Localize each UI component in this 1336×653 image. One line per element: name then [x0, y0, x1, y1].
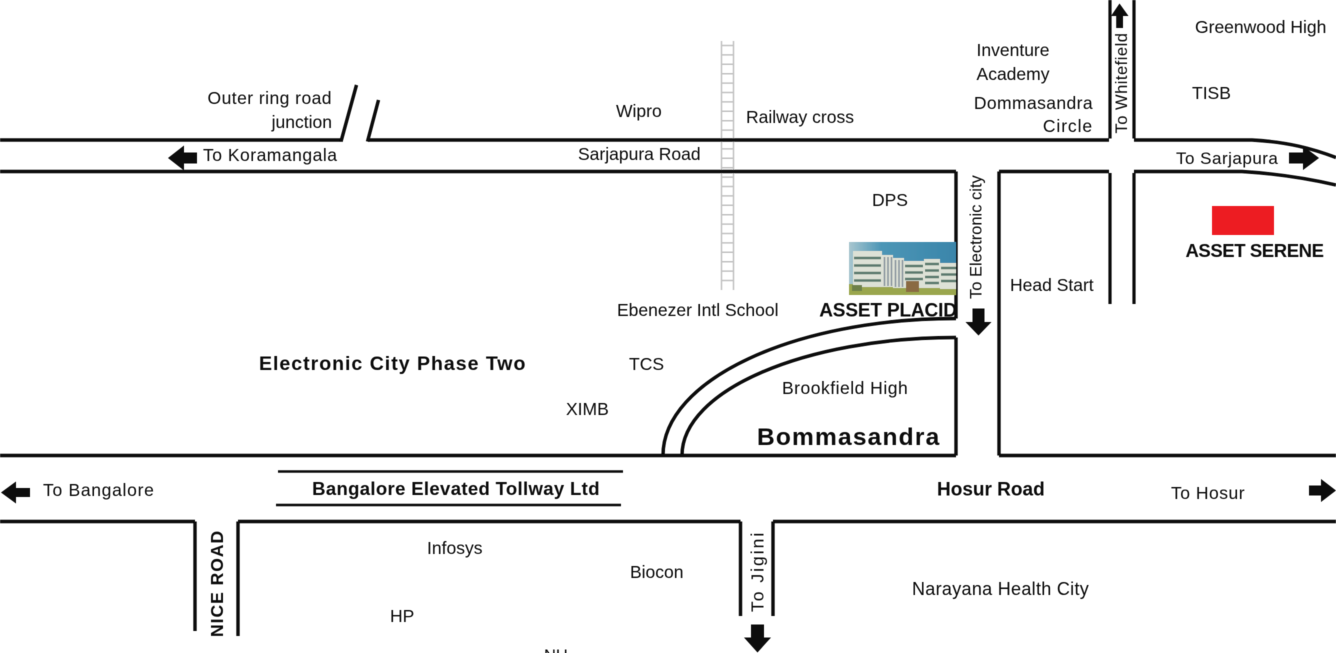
svg-text:Biocon: Biocon	[630, 562, 684, 582]
svg-text:To Hosur: To Hosur	[1171, 483, 1245, 503]
svg-text:DPS: DPS	[872, 190, 908, 210]
svg-text:Inventure: Inventure	[977, 40, 1050, 60]
svg-text:To Koramangala: To Koramangala	[203, 145, 337, 165]
svg-text:To Whitefield: To Whitefield	[1113, 33, 1131, 134]
svg-text:To Bangalore: To Bangalore	[43, 480, 155, 500]
svg-text:TCS: TCS	[629, 354, 664, 374]
svg-text:HP: HP	[390, 606, 414, 626]
svg-text:Bangalore Elevated Tollway Ltd: Bangalore Elevated Tollway Ltd	[312, 478, 600, 499]
svg-text:To Jigini: To Jigini	[748, 531, 768, 612]
svg-text:Outer ring road: Outer ring road	[208, 88, 332, 108]
svg-text:NH: NH	[544, 647, 568, 653]
svg-text:Wipro: Wipro	[616, 101, 662, 121]
svg-text:junction: junction	[271, 112, 332, 132]
svg-text:Hosur Road: Hosur Road	[937, 480, 1045, 501]
svg-text:Head Start: Head Start	[1010, 275, 1094, 295]
svg-text:Narayana Health City: Narayana Health City	[912, 579, 1089, 599]
svg-text:Circle: Circle	[1043, 116, 1093, 136]
svg-text:Ebenezer Intl School: Ebenezer Intl School	[617, 300, 779, 320]
svg-text:ASSET SERENE: ASSET SERENE	[1185, 240, 1323, 261]
svg-text:Academy: Academy	[977, 64, 1050, 84]
svg-text:Dommasandra: Dommasandra	[974, 93, 1093, 113]
svg-text:Sarjapura Road: Sarjapura Road	[578, 144, 701, 164]
svg-text:XIMB: XIMB	[566, 399, 609, 419]
svg-text:TISB: TISB	[1192, 83, 1231, 103]
svg-text:Greenwood High: Greenwood High	[1195, 17, 1326, 37]
svg-text:Brookfield High: Brookfield High	[782, 378, 908, 398]
svg-text:ASSET PLACID: ASSET PLACID	[819, 301, 957, 322]
svg-text:NICE ROAD: NICE ROAD	[207, 530, 227, 637]
svg-text:To Sarjapura: To Sarjapura	[1176, 149, 1278, 168]
svg-text:Electronic City Phase Two: Electronic City Phase Two	[259, 353, 526, 375]
svg-text:Infosys: Infosys	[427, 538, 483, 558]
svg-text:Railway cross: Railway cross	[746, 107, 854, 127]
svg-text:To Electronic city: To Electronic city	[968, 174, 986, 299]
svg-text:Bommasandra: Bommasandra	[757, 424, 940, 451]
